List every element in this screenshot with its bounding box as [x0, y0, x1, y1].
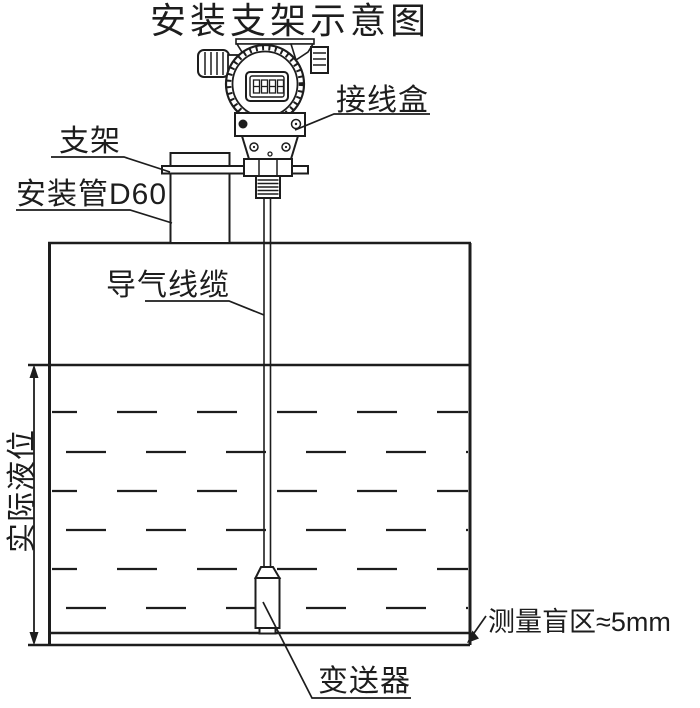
dimension-arrow-down: [30, 632, 39, 646]
installation-diagram: 安装支架示意图: [0, 0, 700, 708]
probe-transmitter: [256, 567, 280, 634]
label-actual-level: 实际液位: [6, 429, 39, 553]
neck-upper: [235, 113, 305, 136]
terminal-block: [311, 47, 328, 73]
neck-lower: [242, 136, 298, 159]
label-junction-box: 接线盒: [336, 84, 429, 117]
page-title: 安装支架示意图: [150, 0, 430, 41]
air-cable: [264, 197, 271, 568]
label-transmitter: 变送器: [318, 665, 411, 698]
label-mounting-pipe: 安装管D60: [16, 178, 167, 211]
hex-nut: [244, 159, 292, 176]
label-bracket: 支架: [59, 125, 121, 158]
tank-outline: [28, 243, 471, 645]
threaded-stem: [256, 176, 280, 198]
dimension-arrow-up: [30, 365, 39, 379]
label-blind-zone: 测量盲区≈5mm: [488, 607, 671, 637]
bolt-left-filled: [239, 120, 248, 129]
label-air-cable: 导气线缆: [106, 269, 230, 302]
lcd-display: [246, 72, 288, 101]
